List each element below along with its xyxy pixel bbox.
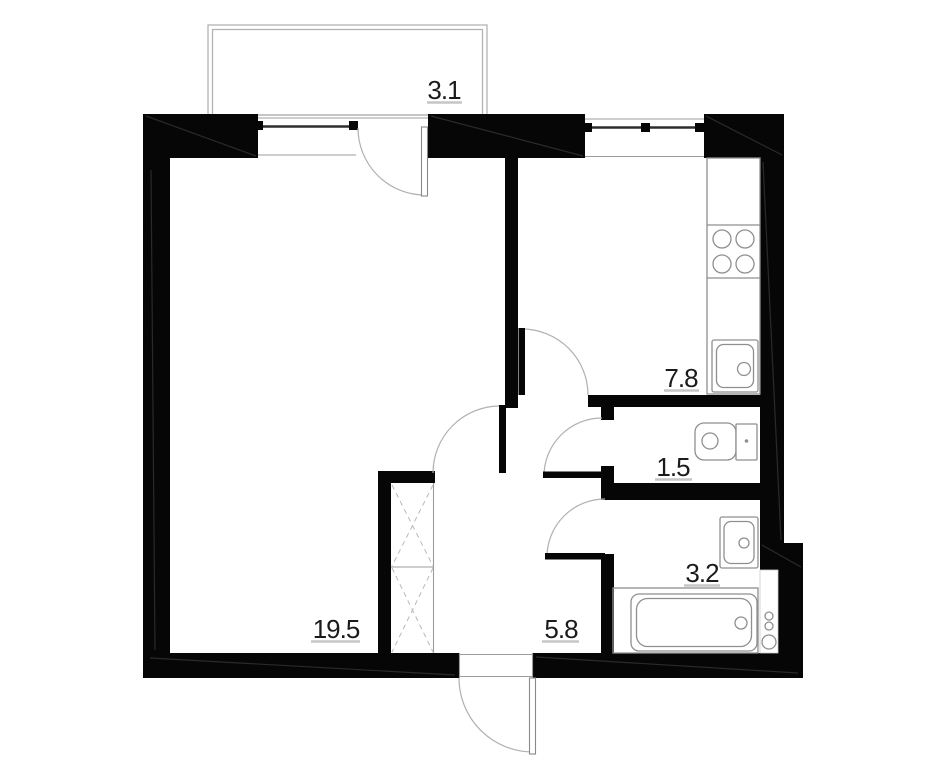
wall-wardrobe-left xyxy=(378,471,391,653)
wall-bottom-left xyxy=(143,653,459,678)
wall-bathroom-hallway xyxy=(601,554,614,654)
room-label-balcony: 3.1 xyxy=(427,75,461,105)
window-mark xyxy=(349,121,358,130)
floor-plan-drawing: 3.1 19.5 7.8 1.5 3.2 5.8 xyxy=(0,0,940,775)
room-label-wc: 1.5 xyxy=(656,452,690,482)
room-label-kitchen: 7.8 xyxy=(664,363,698,393)
wc-door-leaf xyxy=(543,472,603,479)
bathroom-door-leaf xyxy=(545,553,605,560)
balcony-door-leaf xyxy=(422,127,428,196)
wc-fixtures xyxy=(695,423,757,460)
room-label-hallway: 5.8 xyxy=(544,614,578,644)
wall-living-kitchen xyxy=(505,158,518,408)
room-label-living: 19.5 xyxy=(313,614,360,644)
wall-wc-bathroom xyxy=(601,483,760,500)
entrance-door-leaf xyxy=(530,678,536,754)
wall-wc-jamb-top xyxy=(601,395,614,420)
window-mark xyxy=(695,123,704,132)
room-label-bathroom: 3.2 xyxy=(685,558,719,588)
toilet-bowl xyxy=(695,423,736,460)
kitchen-sink xyxy=(712,340,758,392)
living-room-door-leaf xyxy=(499,405,506,473)
toilet-flush-button xyxy=(745,439,749,443)
wall-left xyxy=(143,114,170,678)
floor-plan-canvas: 3.1 19.5 7.8 1.5 3.2 5.8 xyxy=(0,0,940,775)
kitchen-door-leaf xyxy=(519,328,526,395)
window-mark xyxy=(641,123,650,132)
